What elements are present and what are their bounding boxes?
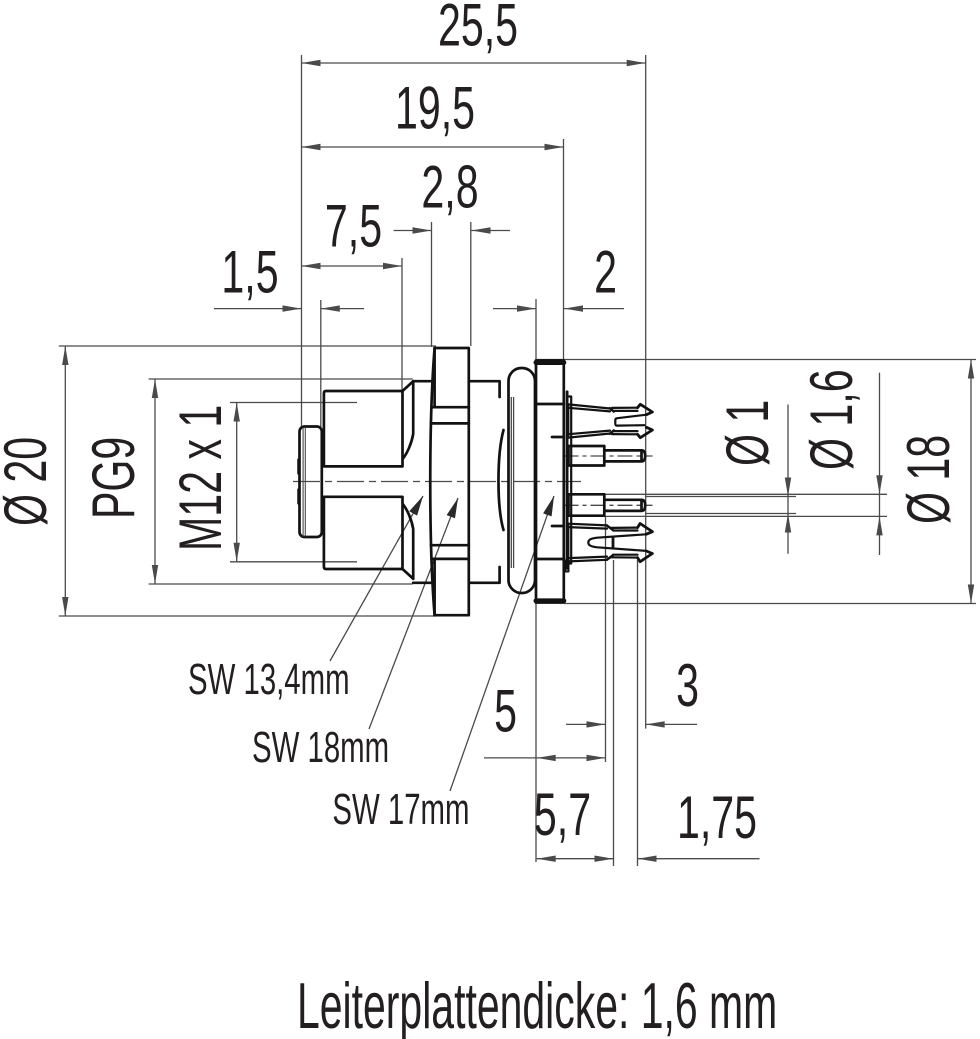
svg-text:Ø 1,6: Ø 1,6 bbox=[797, 369, 865, 470]
svg-text:SW 13,4mm: SW 13,4mm bbox=[188, 655, 350, 703]
svg-text:Ø 20: Ø 20 bbox=[0, 437, 59, 526]
svg-text:Ø 18: Ø 18 bbox=[894, 435, 962, 524]
svg-text:2,8: 2,8 bbox=[421, 153, 478, 221]
svg-text:PG9: PG9 bbox=[79, 437, 147, 519]
svg-text:19,5: 19,5 bbox=[395, 74, 475, 142]
svg-text:Ø 1: Ø 1 bbox=[713, 400, 781, 466]
svg-text:1,5: 1,5 bbox=[221, 238, 278, 306]
svg-text:5: 5 bbox=[494, 677, 517, 745]
svg-text:2: 2 bbox=[594, 238, 617, 306]
svg-text:5,7: 5,7 bbox=[534, 780, 591, 848]
svg-text:7,5: 7,5 bbox=[325, 192, 382, 260]
svg-text:SW 17mm: SW 17mm bbox=[332, 785, 469, 833]
svg-text:SW 18mm: SW 18mm bbox=[252, 723, 389, 771]
svg-text:25,5: 25,5 bbox=[438, 0, 518, 58]
svg-text:Leiterplattendicke: 1,6 mm: Leiterplattendicke: 1,6 mm bbox=[297, 971, 777, 1039]
svg-text:3: 3 bbox=[676, 651, 699, 719]
svg-text:1,75: 1,75 bbox=[677, 783, 757, 851]
svg-text:M12 x 1: M12 x 1 bbox=[166, 405, 234, 551]
